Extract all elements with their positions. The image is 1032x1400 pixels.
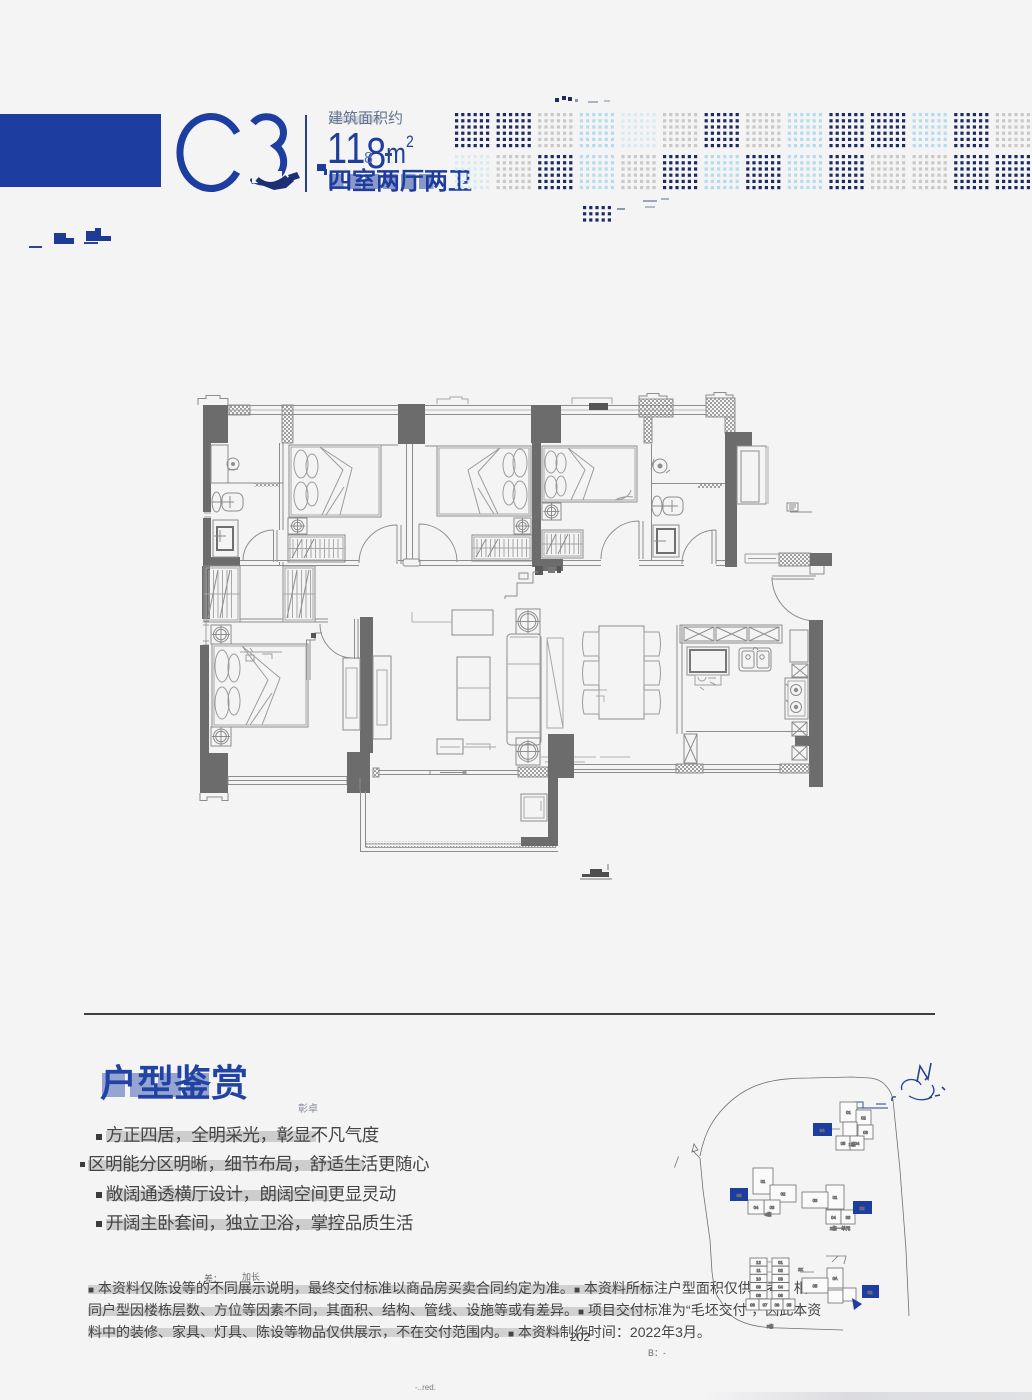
svg-text:4栋: 4栋 <box>764 1211 772 1218</box>
svg-text:02: 02 <box>859 1206 865 1211</box>
svg-text:05: 05 <box>787 1303 792 1308</box>
svg-text:03: 03 <box>846 1215 851 1220</box>
svg-text:02: 02 <box>867 1290 873 1295</box>
svg-text:04: 04 <box>819 1128 825 1133</box>
svg-text:3栋: 3栋 <box>766 1323 774 1330</box>
svg-text:06: 06 <box>778 1293 783 1298</box>
svg-text:12: 12 <box>756 1260 761 1265</box>
svg-text:1栋: 1栋 <box>848 1141 856 1148</box>
svg-text:11: 11 <box>756 1268 761 1273</box>
svg-text:03: 03 <box>778 1276 783 1281</box>
svg-text:06: 06 <box>775 1303 780 1308</box>
svg-text:01: 01 <box>846 1110 851 1115</box>
svg-text:04: 04 <box>778 1285 783 1290</box>
svg-text:03: 03 <box>736 1193 742 1198</box>
svg-text:05: 05 <box>813 1284 818 1289</box>
svg-text:04: 04 <box>754 1205 759 1210</box>
svg-text:08: 08 <box>756 1293 761 1298</box>
svg-text:03: 03 <box>770 1205 775 1210</box>
svg-text:0A: 0A <box>832 1276 837 1281</box>
svg-text:03: 03 <box>813 1198 818 1203</box>
svg-text:09: 09 <box>756 1285 761 1290</box>
svg-text:02: 02 <box>781 1192 786 1197</box>
svg-text:05: 05 <box>841 1141 846 1146</box>
svg-text:02: 02 <box>778 1268 783 1273</box>
svg-text:01: 01 <box>778 1260 783 1265</box>
svg-text:07: 07 <box>763 1303 768 1308</box>
svg-text:01: 01 <box>761 1179 766 1184</box>
svg-text:10: 10 <box>756 1276 761 1281</box>
svg-text:03: 03 <box>863 1130 868 1135</box>
svg-text:04: 04 <box>831 1215 836 1220</box>
svg-text:2K: 2K <box>798 1267 803 1272</box>
svg-text:2栋一单元: 2栋一单元 <box>830 1225 851 1232</box>
svg-text:01: 01 <box>833 1195 838 1200</box>
svg-text:08: 08 <box>750 1303 755 1308</box>
svg-text:02: 02 <box>861 1116 866 1121</box>
